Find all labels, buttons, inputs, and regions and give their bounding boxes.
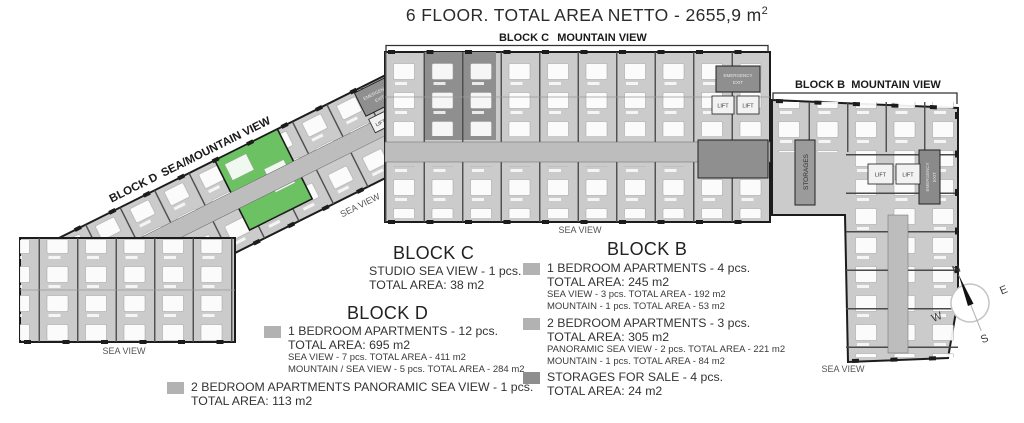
legend-line: STORAGES FOR SALE - 4 pcs. [547,370,723,384]
legend-block-b-title: BLOCK B [607,239,687,260]
compass-label-e: E [998,284,1009,298]
emergency-exit-label: EXIT [932,172,937,182]
emergency-exit-label: EMERGENCY [925,162,930,191]
legend-line: 2 BEDROOM APARTMENTS - 3 pcs. [547,316,785,330]
legend-block-d-item-2br: 2 BEDROOM APARTMENTS PANORAMIC SEA VIEW … [167,380,533,408]
legend-line: 1 BEDROOM APARTMENTS - 4 pcs. [547,261,750,275]
legend-swatch-2br-b [523,318,540,330]
legend-block-d-title: BLOCK D [347,303,428,324]
block-d-lower-wing: SEA VIEW [20,238,235,356]
legend-block-b-item-1br: 1 BEDROOM APARTMENTS - 4 pcs. TOTAL AREA… [523,261,750,312]
legend-line: TOTAL AREA: 305 m2 [547,330,785,344]
storages-label: STORAGES [803,153,810,190]
legend-detail: MOUNTAIN / SEA VIEW - 5 pcs. TOTAL AREA … [288,364,525,376]
title-superscript: 2 [762,5,769,17]
label-sea-view-d-bottom: SEA VIEW [102,346,146,356]
emergency-exit-label: EMERGENCY [723,73,752,78]
floor-plan-page: EMERGENCY EXIT LIFT LIFT BLOCK D SEA/MOU… [0,0,1024,423]
label-block-b-view: MOUNTAIN VIEW [851,79,941,91]
page-title-text: 6 FLOOR. TOTAL AREA NETTO - 2655,9 m [406,5,762,25]
legend-line: TOTAL AREA: 695 m2 [288,338,525,352]
legend-detail: PANORAMIC SEA VIEW - 2 pcs. TOTAL AREA -… [547,344,785,356]
legend-block-c-title: BLOCK C [393,243,474,264]
legend-line: TOTAL AREA: 38 m2 [369,278,521,292]
block-c-building: EMERGENCY EXIT LIFT LIFT BLOCK C MOUNTAI… [385,32,770,235]
legend-line: 1 BEDROOM APARTMENTS - 12 pcs. [288,324,525,338]
label-block-c-view: MOUNTAIN VIEW [557,32,647,44]
legend-swatch-1br-b [523,263,540,275]
label-block-c: BLOCK C [499,32,549,44]
legend-line: 2 BEDROOM APARTMENTS PANORAMIC SEA VIEW … [191,380,533,394]
legend-detail: MOUNTAIN - 1 pcs. TOTAL AREA - 84 m2 [547,356,785,368]
legend-line: TOTAL AREA: 113 m2 [191,394,533,408]
legend-block-b-item-storages: STORAGES FOR SALE - 4 pcs. TOTAL AREA: 2… [523,370,723,398]
lift-label: LIFT [875,173,887,179]
block-b-building: STORAGES EMERGENCY EXIT LIFT LIFT BLOCK … [772,79,958,374]
legend-detail: SEA VIEW - 7 pcs. TOTAL AREA - 411 m2 [288,352,525,364]
emergency-exit-room-c [716,66,760,92]
legend-block-c-item: STUDIO SEA VIEW - 1 pcs. TOTAL AREA: 38 … [369,264,521,292]
lift-label: LIFT [717,104,729,110]
lift-label: LIFT [742,104,754,110]
legend-detail: MOUNTAIN - 1 pcs. TOTAL AREA - 53 m2 [547,301,750,313]
label-sea-view-c: SEA VIEW [558,225,602,235]
legend-swatch-1br-d [264,326,281,338]
legend-swatch-2br-d [167,382,184,394]
block-c-dark-storage-units [698,140,768,178]
compass-label-s: S [979,332,990,346]
page-title: 6 FLOOR. TOTAL AREA NETTO - 2655,9 m2 [150,5,1024,26]
lift-label: LIFT [902,173,914,179]
legend-line: TOTAL AREA: 24 m2 [547,384,723,398]
legend-line: TOTAL AREA: 245 m2 [547,275,750,289]
label-block-b: BLOCK B [795,79,845,91]
emergency-exit-label: EXIT [733,80,743,85]
legend-block-b-item-2br: 2 BEDROOM APARTMENTS - 3 pcs. TOTAL AREA… [523,316,785,367]
legend-swatch-storages [523,372,540,384]
label-sea-view-b: SEA VIEW [821,364,865,374]
block-b-corridor [888,215,908,353]
legend-line: STUDIO SEA VIEW - 1 pcs. [369,264,521,278]
legend-detail: SEA VIEW - 3 pcs. TOTAL AREA - 192 m2 [547,289,750,301]
legend-block-d-item-1br: 1 BEDROOM APARTMENTS - 12 pcs. TOTAL ARE… [264,324,525,375]
